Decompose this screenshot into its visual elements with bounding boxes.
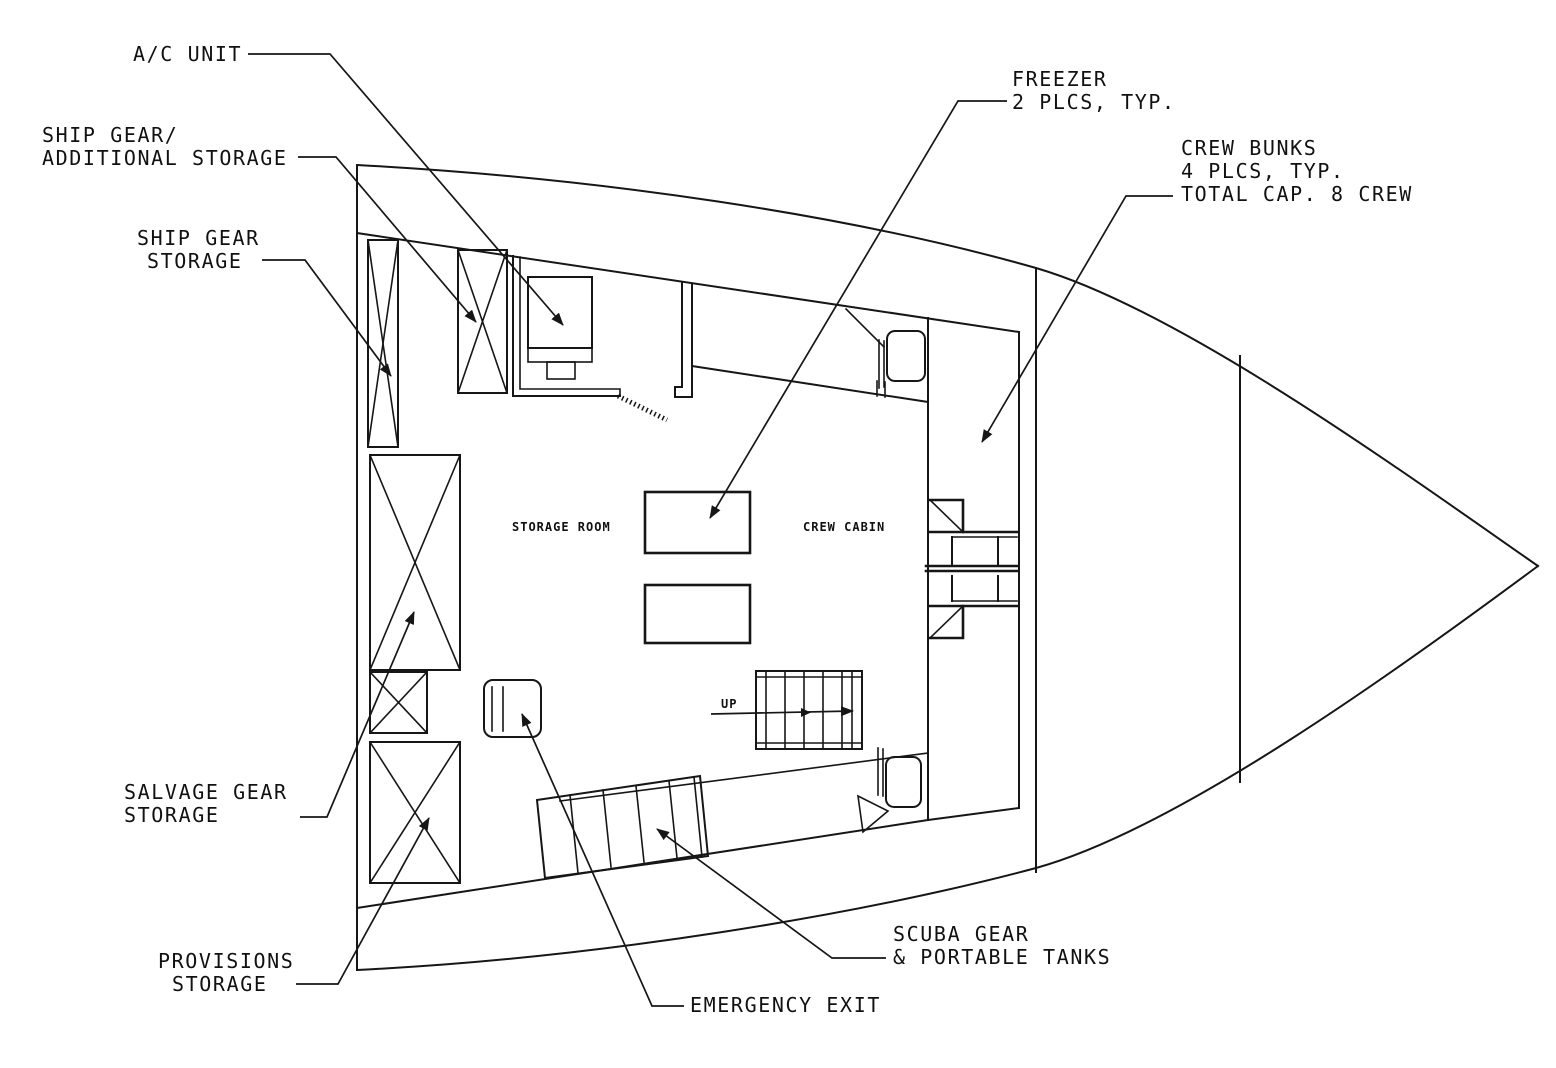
callout-label: 2 PLCS, TYP. [1012, 90, 1176, 114]
callout-label: SHIP GEAR/ [42, 123, 178, 147]
rack-outline [537, 776, 708, 878]
bunk-ladder-diagonal [930, 606, 963, 638]
overhead-top-wall [357, 233, 1019, 332]
deck-plan-drawing: UP [0, 0, 1556, 1068]
ac-unit-base [528, 348, 592, 362]
platform-edge-line [560, 753, 928, 801]
hull-bottom-sheer-line [357, 566, 1538, 970]
seat-outline [887, 331, 925, 381]
stairs-up: UP [711, 671, 862, 749]
callout-emergency-exit: EMERGENCY EXIT [522, 714, 881, 1017]
ac-unit-body [528, 277, 592, 348]
small-locker [370, 672, 427, 733]
callout-provisions-storage: PROVISIONS STORAGE [158, 818, 429, 996]
callout-label: SALVAGE GEAR [124, 780, 288, 804]
ac-unit-pedestal [547, 362, 575, 379]
provisions-locker [370, 742, 460, 883]
freezer-2 [645, 585, 750, 643]
scuba-rack [537, 776, 708, 878]
door-swing-leaf [618, 396, 667, 420]
leader-line [522, 714, 684, 1006]
callout-crew-bunks: CREW BUNKS 4 PLCS, TYP. TOTAL CAP. 8 CRE… [982, 136, 1413, 442]
salvage-gear-locker [370, 455, 460, 670]
callout-freezer: FREEZER 2 PLCS, TYP. [710, 67, 1176, 518]
callout-label: A/C UNIT [133, 42, 242, 66]
up-direction-arrow [711, 711, 853, 714]
callout-label: STORAGE [124, 803, 220, 827]
seat-outline [886, 757, 921, 807]
up-mid-arrow-tick [801, 708, 811, 717]
callout-ship-gear-storage: SHIP GEAR STORAGE [137, 226, 391, 376]
crew-cabin-label: CREW CABIN [803, 520, 885, 534]
callout-label: STORAGE [172, 972, 268, 996]
bunk-lower [930, 576, 1017, 638]
callout-label: SCUBA GEAR [893, 922, 1029, 946]
leader-line [248, 54, 563, 325]
leader-line [982, 196, 1173, 442]
freezer-1 [645, 492, 750, 553]
boat-hull [357, 165, 1538, 970]
stairs-outline [756, 671, 862, 749]
cabin-front-wall [692, 366, 928, 402]
callout-ship-gear-additional-storage: SHIP GEAR/ ADDITIONAL STORAGE [42, 123, 476, 322]
leader-line [657, 829, 886, 958]
rack-divider [669, 781, 677, 858]
ac-unit [528, 277, 592, 379]
callout-label: TOTAL CAP. 8 CREW [1181, 182, 1413, 206]
callout-label: PROVISIONS [158, 949, 294, 973]
ship-gear-storage-locker [368, 240, 398, 447]
leader-line [710, 101, 1007, 518]
additional-storage-locker [458, 250, 507, 393]
callout-label: & PORTABLE TANKS [893, 945, 1111, 969]
leader-line [262, 260, 391, 376]
callout-ac-unit: A/C UNIT [133, 42, 563, 325]
up-label: UP [721, 697, 737, 711]
floor-plan-page: UP [0, 0, 1556, 1068]
seat-storage-room [484, 680, 541, 737]
callout-scuba-gear: SCUBA GEAR & PORTABLE TANKS [657, 829, 1111, 969]
callout-label: CREW BUNKS [1181, 136, 1317, 160]
callout-label: ADDITIONAL STORAGE [42, 146, 288, 170]
rack-divider [603, 790, 611, 867]
rack-divider [636, 786, 644, 862]
crew-bunks [926, 500, 1017, 638]
door-jamb-wall-stub [675, 282, 692, 397]
callout-label: STORAGE [147, 249, 243, 273]
callout-label: SHIP GEAR [137, 226, 260, 250]
rack-divider [570, 795, 578, 873]
storage-room-label: STORAGE ROOM [512, 520, 611, 534]
callout-label: 4 PLCS, TYP. [1181, 159, 1345, 183]
bunk-ladder-diagonal [930, 500, 963, 532]
freezers [645, 492, 750, 643]
callout-label: EMERGENCY EXIT [690, 993, 881, 1017]
callout-label: FREEZER [1012, 67, 1108, 91]
interior-walls [357, 233, 1019, 908]
seat-cabin-top [846, 309, 925, 388]
hull-top-sheer-line [357, 165, 1538, 566]
bunk-upper [930, 500, 1017, 566]
leader-line [296, 818, 429, 984]
